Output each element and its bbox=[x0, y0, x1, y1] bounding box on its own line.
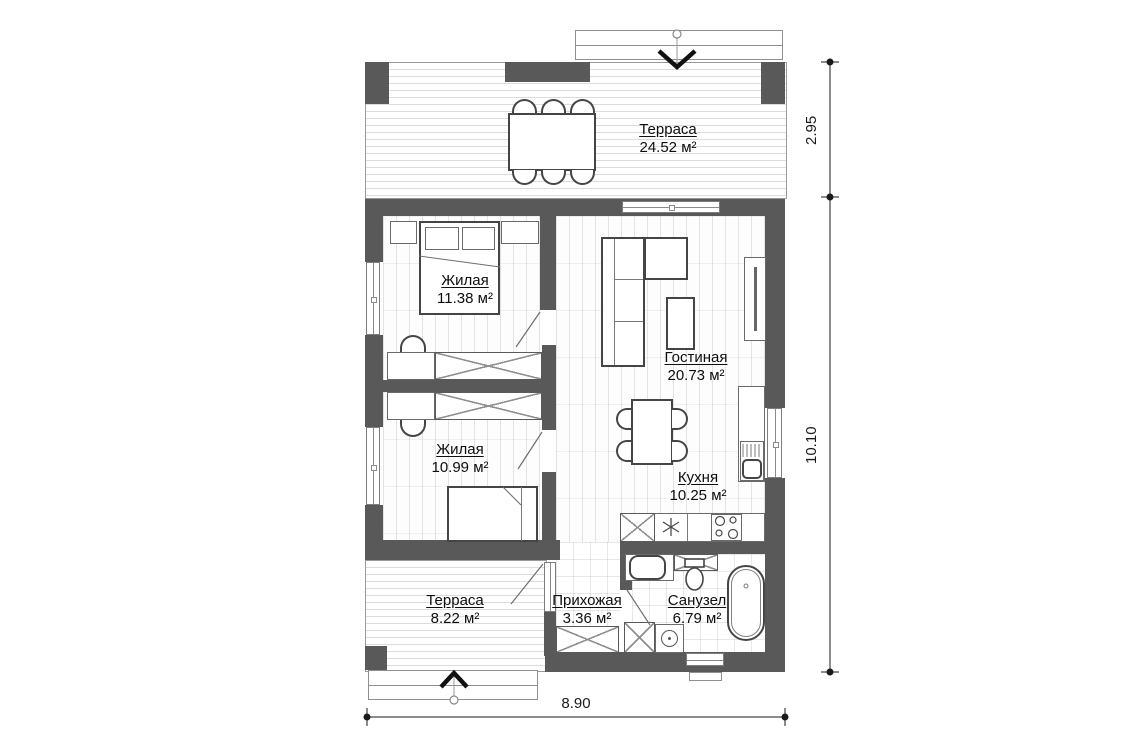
room-label-kitchen: Кухня 10.25 м² bbox=[638, 469, 758, 504]
room-name: Терраса bbox=[395, 592, 515, 610]
plan-overlay bbox=[0, 0, 1142, 753]
room-name: Прихожая bbox=[527, 592, 647, 610]
room-area: 11.38 м² bbox=[405, 290, 525, 308]
room-label-bathroom: Санузел 6.79 м² bbox=[637, 592, 757, 627]
room-label-bedroom-2: Жилая 10.99 м² bbox=[400, 441, 520, 476]
room-area: 20.73 м² bbox=[636, 367, 756, 385]
door-swing-icon bbox=[511, 312, 650, 625]
room-label-terrace-top: Терраса 24.52 м² bbox=[608, 121, 728, 156]
room-area: 10.99 м² bbox=[400, 459, 520, 477]
room-label-terrace-bottom: Терраса 8.22 м² bbox=[395, 592, 515, 627]
room-name: Кухня bbox=[638, 469, 758, 487]
room-area: 3.36 м² bbox=[527, 610, 647, 628]
room-name: Санузел bbox=[637, 592, 757, 610]
room-area: 24.52 м² bbox=[608, 139, 728, 157]
dimension-label-bottom: 8.90 bbox=[536, 695, 616, 712]
room-area: 8.22 м² bbox=[395, 610, 515, 628]
floor-plan: Терраса 24.52 м² Жилая 11.38 м² Гостиная… bbox=[0, 0, 1142, 753]
dimension-label-right-lower: 10.10 bbox=[803, 408, 820, 482]
drying-rack-icon bbox=[743, 444, 759, 457]
entrance-arrow-down-icon bbox=[659, 30, 695, 67]
room-name: Жилая bbox=[405, 272, 525, 290]
room-label-hallway: Прихожая 3.36 м² bbox=[527, 592, 647, 627]
room-name: Терраса bbox=[608, 121, 728, 139]
entrance-arrow-up-icon bbox=[441, 673, 467, 704]
room-area: 10.25 м² bbox=[638, 487, 758, 505]
room-name: Жилая bbox=[400, 441, 520, 459]
room-label-bedroom-1: Жилая 11.38 м² bbox=[405, 272, 525, 307]
room-label-living-room: Гостиная 20.73 м² bbox=[636, 349, 756, 384]
star-symbol-icon bbox=[663, 518, 679, 536]
dimension-label-right-upper: 2.95 bbox=[803, 100, 820, 160]
room-name: Гостиная bbox=[636, 349, 756, 367]
toilet-icon bbox=[685, 559, 704, 590]
room-area: 6.79 м² bbox=[637, 610, 757, 628]
stove-burners-icon bbox=[716, 517, 738, 539]
